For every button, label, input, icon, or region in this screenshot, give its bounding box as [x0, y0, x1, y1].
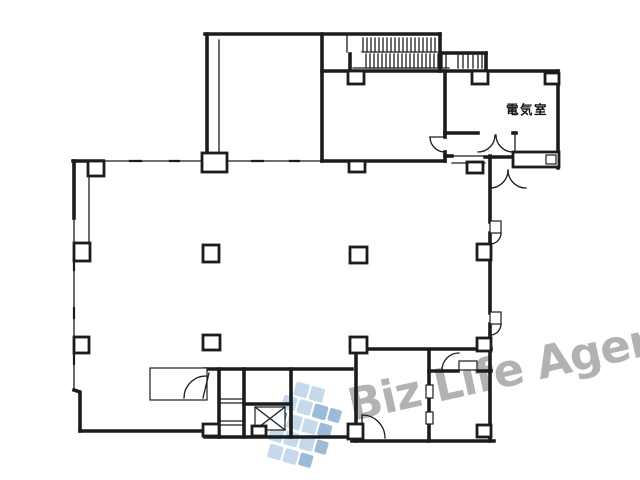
column	[350, 337, 367, 353]
column	[74, 243, 90, 261]
column	[477, 244, 491, 260]
counter	[150, 368, 209, 400]
column	[349, 161, 365, 172]
right-wall-door-leaf-lower	[490, 312, 501, 324]
column	[477, 425, 491, 437]
column	[348, 71, 364, 84]
stair-treads-lower	[366, 54, 446, 68]
floor-plan-page: Biz Life Agent	[0, 0, 640, 480]
column	[350, 247, 367, 263]
column	[477, 338, 491, 351]
right-wall-door-leaf-upper	[490, 221, 501, 233]
column	[545, 73, 559, 84]
column	[348, 424, 363, 439]
column	[472, 71, 488, 84]
column	[202, 153, 227, 172]
column	[203, 335, 220, 350]
column	[74, 337, 89, 353]
column	[252, 426, 266, 436]
door-leaf	[459, 361, 477, 370]
column	[467, 162, 483, 173]
room-label-electrical: 電気室	[506, 102, 548, 117]
column	[88, 161, 104, 176]
column	[203, 424, 219, 436]
floor-plan-svg: Biz Life Agent	[0, 0, 640, 480]
column	[203, 245, 219, 262]
